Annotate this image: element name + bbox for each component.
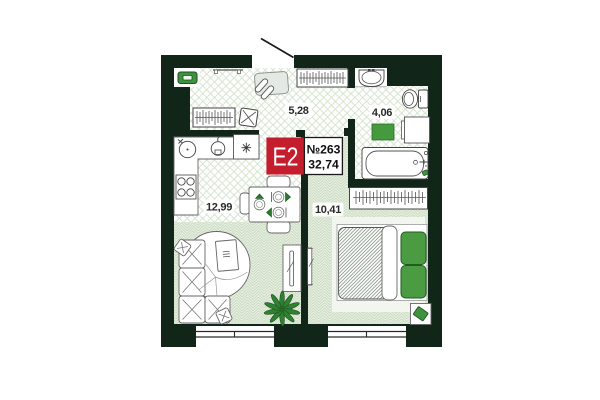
svg-text:4,06: 4,06: [372, 107, 392, 119]
svg-text:№263: №263: [307, 143, 341, 157]
svg-text:32,74: 32,74: [308, 158, 339, 172]
svg-text:5,28: 5,28: [288, 105, 308, 117]
svg-text:E2: E2: [273, 142, 299, 172]
svg-text:12,99: 12,99: [206, 201, 232, 213]
svg-text:10,41: 10,41: [315, 204, 341, 216]
